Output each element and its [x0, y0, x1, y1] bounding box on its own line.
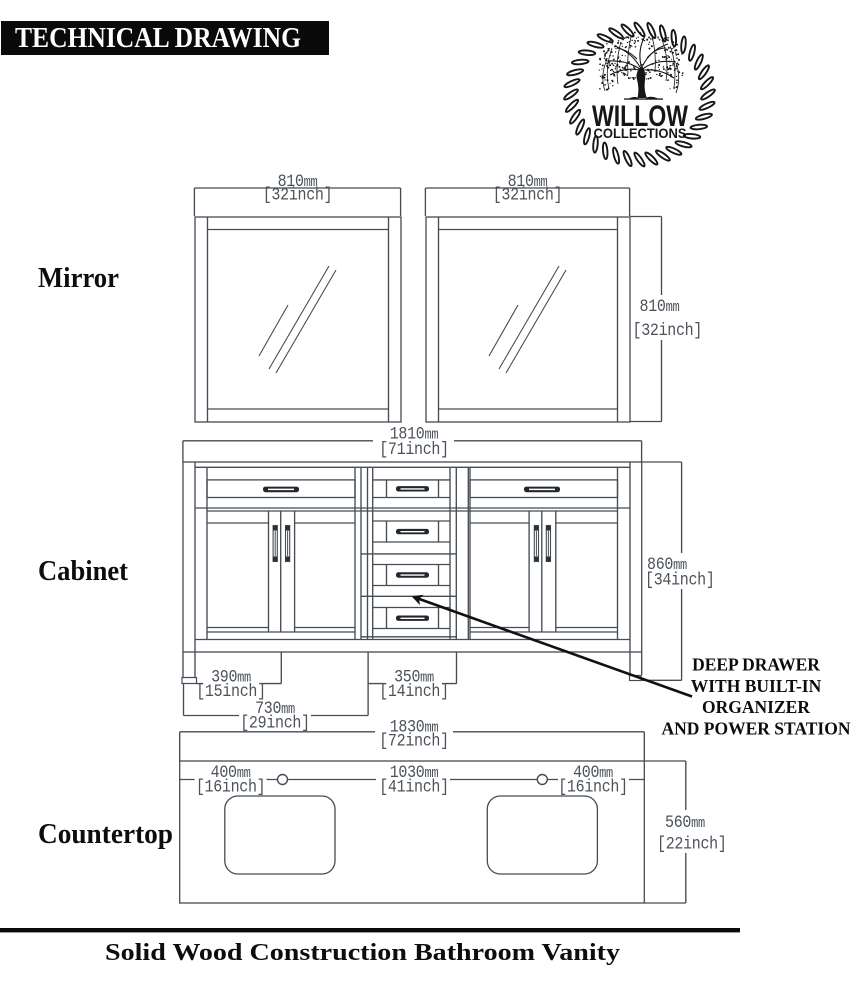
svg-text:Solid Wood Construction Bathro: Solid Wood Construction Bathroom Vanity — [105, 940, 620, 966]
svg-text:DEEP DRAWER: DEEP DRAWER — [692, 655, 820, 675]
svg-text:[22inch]: [22inch] — [657, 833, 727, 854]
svg-text:[34inch]: [34inch] — [645, 569, 715, 590]
svg-text:Countertop: Countertop — [38, 818, 173, 850]
svg-text:[14inch]: [14inch] — [379, 681, 449, 702]
svg-text:[32inch]: [32inch] — [493, 184, 563, 205]
svg-text:AND POWER STATION: AND POWER STATION — [662, 718, 851, 738]
svg-text:[16inch]: [16inch] — [558, 776, 628, 797]
svg-text:[32inch]: [32inch] — [633, 320, 703, 341]
svg-text:[41inch]: [41inch] — [379, 776, 449, 797]
svg-text:[29inch]: [29inch] — [240, 712, 310, 733]
svg-text:[32inch]: [32inch] — [263, 184, 333, 205]
svg-text:Mirror: Mirror — [38, 262, 119, 294]
svg-text:[16inch]: [16inch] — [196, 776, 266, 797]
svg-text:[71inch]: [71inch] — [379, 439, 449, 460]
svg-text:WITH BUILT-IN: WITH BUILT-IN — [691, 676, 822, 696]
svg-text:810mm: 810mm — [640, 296, 680, 317]
svg-text:[72inch]: [72inch] — [379, 730, 449, 751]
svg-text:ORGANIZER: ORGANIZER — [702, 697, 810, 717]
svg-text:TECHNICAL DRAWING: TECHNICAL DRAWING — [15, 23, 301, 54]
svg-text:COLLECTIONS: COLLECTIONS — [594, 126, 687, 141]
svg-text:Cabinet: Cabinet — [38, 555, 128, 587]
svg-text:560mm: 560mm — [665, 812, 705, 833]
